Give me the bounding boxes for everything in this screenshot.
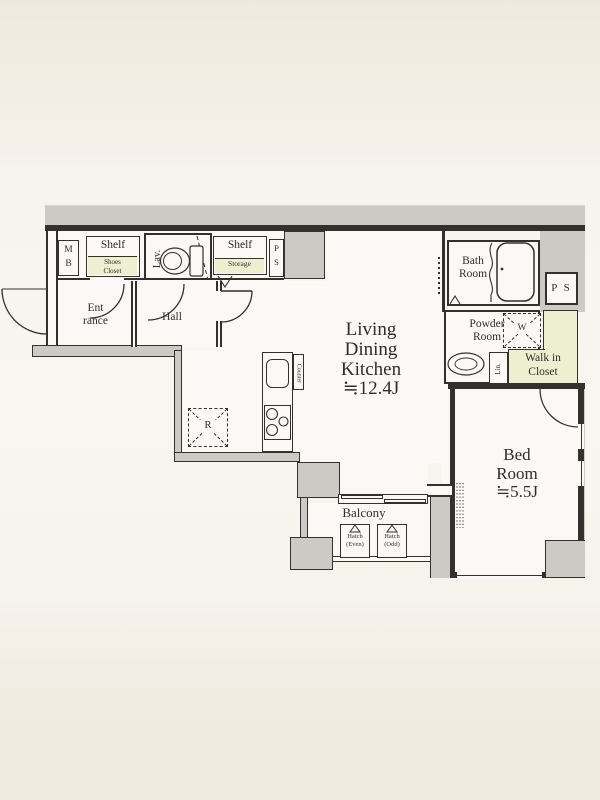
washer-label: W — [512, 323, 532, 334]
stove-burner-icon — [267, 409, 278, 420]
hall-label: Hall — [148, 311, 196, 324]
ldk-label: Living Dining Kitchen ≒12.4J — [300, 320, 442, 399]
bath-door-mark-icon — [450, 296, 460, 304]
hatch-triangle-icon — [387, 525, 397, 532]
storage-door-mark-icon — [218, 276, 232, 287]
plan-linework — [0, 0, 600, 800]
bedroom-label: Bed Room ≒5.5J — [462, 446, 572, 502]
bath-room-label: BathRoom — [449, 255, 497, 281]
bathtub-drain — [501, 268, 504, 271]
door-arc — [540, 389, 578, 427]
stove-burner-icon — [267, 425, 278, 436]
stove-burner-icon — [279, 417, 288, 426]
entrance-label: Entrance — [68, 302, 123, 328]
toilet-bowl-icon — [161, 248, 190, 274]
sink-icon — [448, 353, 484, 375]
walk-in-closet-label: Walk inCloset — [506, 351, 580, 380]
balcony-label: Balcony — [324, 506, 404, 521]
toilet-tank-icon — [190, 246, 203, 276]
refrigerator-label: R — [200, 420, 216, 432]
hatch-triangle-icon — [350, 525, 360, 532]
door-arc — [221, 291, 252, 322]
bathtub-icon — [497, 243, 534, 301]
ldk-size: ≒12.4J — [343, 378, 400, 399]
bedroom-size: ≒5.5J — [496, 482, 538, 501]
front-door-arc — [2, 289, 47, 334]
floor-plan: MB Shelf ShoesCloset Lav. Shelf Storage … — [0, 0, 600, 800]
